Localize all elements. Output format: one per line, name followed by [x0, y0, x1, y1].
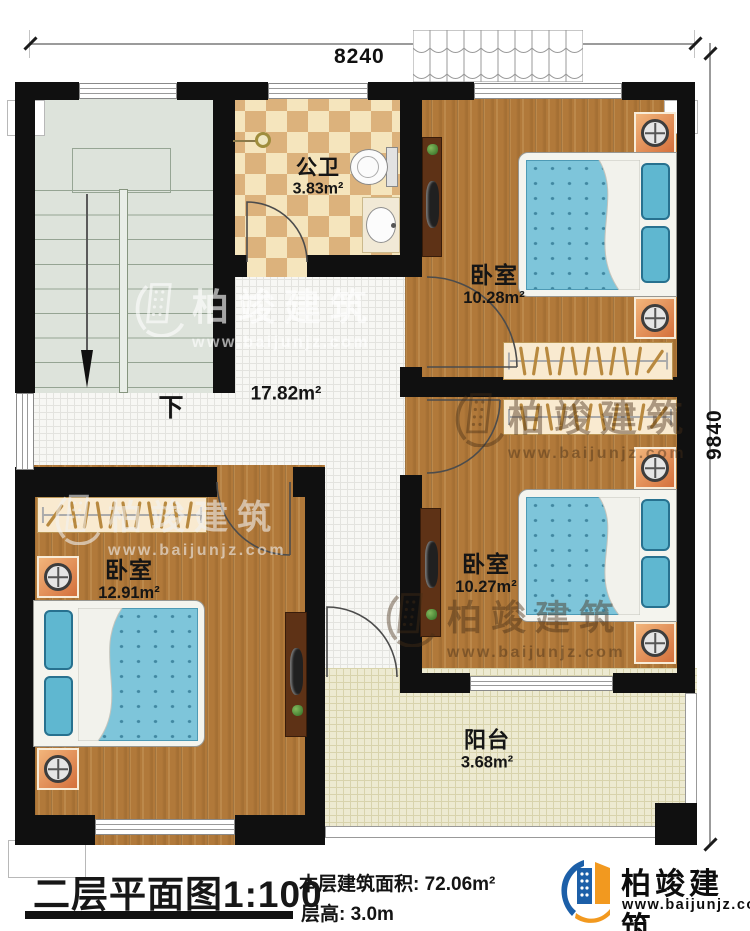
floor-area-value: 72.06m²: [425, 874, 496, 895]
floor-height-line: 层高: 3.0m: [301, 899, 394, 926]
title-underline: [25, 911, 293, 919]
pillow: [44, 610, 73, 670]
stair-rail: [119, 189, 128, 393]
lamp-icon: [641, 304, 669, 332]
watermark-site: www.baijunjz.com: [447, 644, 625, 662]
stair-walk-line: [86, 194, 88, 352]
watermark-site: www.baijunjz.com: [192, 334, 376, 352]
room-area: 3.83m²: [293, 180, 344, 198]
bed: [33, 600, 205, 747]
wall: [15, 470, 35, 845]
nightstand: [634, 297, 676, 339]
wall: [15, 82, 35, 393]
lamp-icon: [641, 119, 669, 147]
lamp-icon: [44, 563, 72, 591]
watermark-logo-icon: [52, 487, 104, 545]
watermark: 柏竣建筑 www.baijunjz.com: [447, 590, 625, 662]
dimension-tick: [703, 46, 717, 60]
plan-title-text: 二层平面图: [33, 874, 223, 915]
window: [95, 819, 235, 835]
window: [474, 83, 622, 99]
watermark-logo-icon: [383, 585, 439, 647]
watermark-logo-icon: [452, 385, 508, 447]
pillow: [641, 556, 670, 608]
balcony-railing: [325, 826, 697, 838]
floor-area-label: 本层建筑面积:: [299, 874, 419, 895]
wardrobe: [503, 342, 673, 380]
wall: [15, 815, 95, 845]
floor-height-label: 层高:: [301, 904, 345, 925]
dimension-width: 8240: [334, 45, 385, 69]
bed: [518, 152, 677, 297]
nightstand: [37, 748, 79, 790]
balcony-post: [655, 803, 697, 845]
shower-knob-icon: [255, 132, 271, 148]
bathroom-label: 公卫 3.83m²: [293, 156, 344, 197]
window: [268, 83, 368, 99]
window: [470, 676, 613, 691]
room-area: 10.27m²: [455, 578, 516, 596]
sink-counter: [362, 197, 400, 253]
watermark: 柏竣建筑 www.baijunjz.com: [192, 277, 376, 352]
floor-height-value: 3.0m: [351, 904, 394, 925]
floor-area-line: 本层建筑面积: 72.06m²: [299, 869, 495, 896]
dimension-height: 9840: [703, 409, 727, 460]
room-name: 卧室: [455, 552, 516, 578]
bed-sheet-fold: [78, 608, 142, 741]
brand-name: 柏竣建筑: [621, 859, 750, 931]
watermark-text: 柏竣建筑: [447, 590, 625, 641]
stair-landing: [72, 148, 171, 193]
pillow: [641, 226, 670, 283]
room-area: 10.28m²: [463, 289, 524, 307]
room-area: 12.91m²: [98, 584, 159, 602]
room-area: 17.82m²: [251, 383, 322, 404]
window: [16, 393, 34, 470]
roof-tiles: [413, 30, 583, 82]
watermark-site: www.baijunjz.com: [508, 445, 692, 463]
floor-plan-page: 柏竣建筑 www.baijunjz.com 柏竣建筑 www.baijunjz.…: [0, 0, 750, 931]
bedroom-bl-label: 卧室 12.91m²: [98, 558, 159, 602]
lamp-icon: [641, 629, 669, 657]
dimension-tick: [703, 837, 717, 851]
watermark-logo-icon: [132, 275, 188, 337]
wall: [305, 467, 325, 845]
plant-icon: [292, 705, 303, 716]
hallway-label: 17.82m²: [251, 383, 322, 404]
pillow: [44, 676, 73, 736]
watermark: 柏竣建筑 www.baijunjz.com: [108, 490, 286, 560]
wall: [613, 673, 682, 693]
wall: [235, 815, 325, 845]
wall: [400, 90, 422, 277]
toilet-icon: [350, 143, 398, 191]
watermark: 柏竣建筑 www.baijunjz.com: [508, 388, 692, 463]
watermark-text: 柏竣建筑: [192, 277, 376, 331]
monitor-icon: [290, 648, 303, 695]
balcony-label: 阳台 3.68m²: [461, 728, 513, 771]
brand-logo-icon: [556, 854, 618, 924]
room-name: 卧室: [463, 263, 524, 289]
desk: [422, 137, 442, 257]
stairs-down-label: 下: [158, 394, 183, 422]
room-area: 3.68m²: [461, 753, 513, 771]
stair-down-arrow: [81, 350, 93, 388]
bedroom-tr-label: 卧室 10.28m²: [463, 263, 524, 307]
bedroom-mr-label: 卧室 10.27m²: [455, 552, 516, 596]
desk: [285, 612, 307, 737]
room-name: 公卫: [293, 156, 344, 180]
plant-icon: [427, 144, 438, 155]
monitor-icon: [425, 541, 438, 588]
bed-sheet-fold: [579, 160, 640, 290]
plan-title: 二层平面图1:100: [33, 864, 323, 918]
watermark-text: 柏竣建筑: [108, 490, 286, 539]
wall: [213, 255, 247, 277]
hangers-icon: [504, 343, 672, 379]
lamp-icon: [44, 755, 72, 783]
room-name: 卧室: [98, 558, 159, 584]
wall: [307, 255, 411, 277]
nightstand: [634, 622, 676, 664]
nightstand: [37, 556, 79, 598]
room-name: 阳台: [461, 728, 513, 753]
wall: [400, 673, 470, 693]
monitor-icon: [426, 181, 439, 228]
nightstand: [634, 112, 676, 154]
brand-website: www.baijunjz.com: [622, 897, 750, 913]
window: [79, 83, 177, 99]
pillow: [641, 499, 670, 551]
watermark-text: 柏竣建筑: [508, 388, 692, 442]
pillow: [641, 163, 670, 220]
